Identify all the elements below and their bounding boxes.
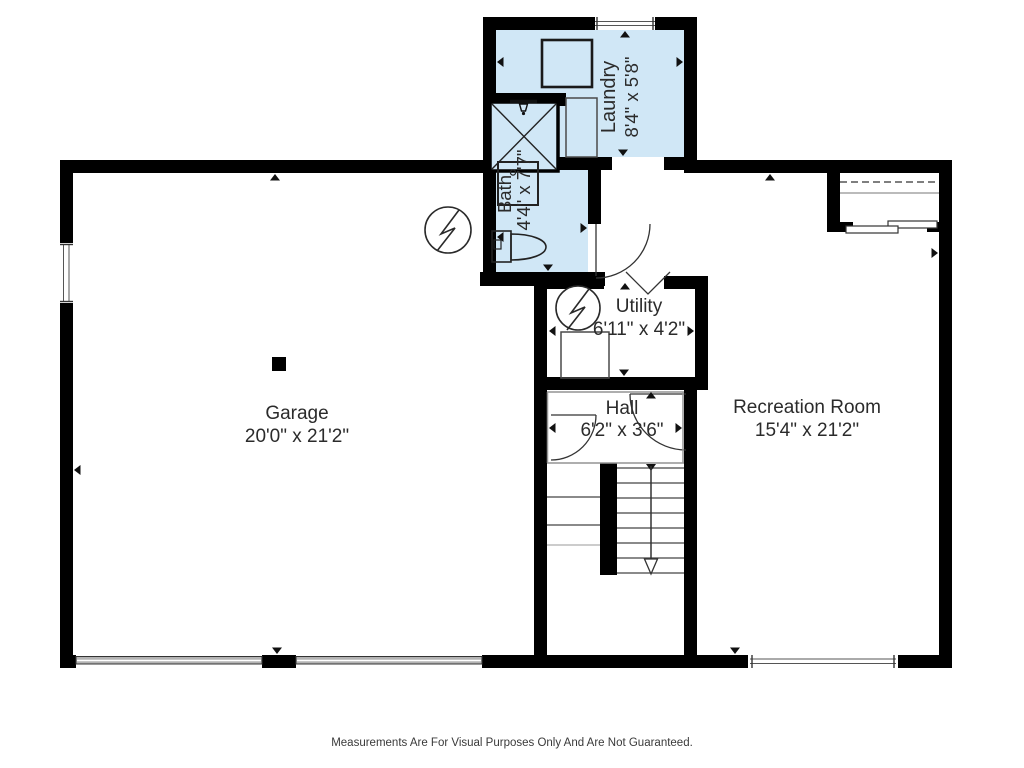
laundry-label: Laundry xyxy=(598,61,620,133)
bath-door xyxy=(596,224,650,278)
recreation-label: Recreation Room xyxy=(733,397,881,418)
circle-bolt-icon xyxy=(425,207,471,253)
bath-label: Bath xyxy=(494,175,515,213)
wall-bottom xyxy=(482,655,748,668)
windows xyxy=(60,17,898,668)
floor-plan-svg: Garage 20'0" x 21'2" Recreation Room 15'… xyxy=(0,0,1024,768)
wall-stair-divider xyxy=(600,463,617,575)
utility-dims: 6'11" x 4'2" xyxy=(593,319,685,340)
wall-closet-left xyxy=(827,173,840,232)
wall-utility-left xyxy=(534,276,547,390)
garage-dims: 20'0" x 21'2" xyxy=(245,426,349,447)
hall-label: Hall xyxy=(606,398,639,419)
wall-rec-top xyxy=(684,160,952,173)
hall-dims: 6'2" x 3'6" xyxy=(580,420,663,441)
wall-hall-left xyxy=(534,390,547,668)
wall-rec-right xyxy=(939,160,952,668)
wall-utility-bottom xyxy=(534,377,708,390)
wall-bottom xyxy=(60,655,76,668)
floor-plan: Garage 20'0" x 21'2" Recreation Room 15'… xyxy=(0,0,1024,768)
footer-disclaimer: Measurements Are For Visual Purposes Onl… xyxy=(331,737,693,749)
laundry-dims: 8'4" x 5'8" xyxy=(621,57,642,138)
garage-door-left xyxy=(76,655,262,668)
wall-bath-right xyxy=(588,168,601,224)
recreation-dims: 15'4" x 21'2" xyxy=(755,420,859,441)
wall-laundry-right xyxy=(684,17,697,173)
wall-garage-left xyxy=(60,160,73,668)
utility-door xyxy=(626,272,670,294)
garage-left-window xyxy=(60,243,73,303)
closet-sliding-door xyxy=(846,221,937,233)
garage-label: Garage xyxy=(265,403,328,424)
bath-dims: 4'4" x 7'7" xyxy=(513,150,534,231)
wall-garage-top xyxy=(60,160,496,173)
laundry-top-window xyxy=(595,17,655,30)
wall-bottom xyxy=(262,655,296,668)
wall-stairs-right xyxy=(684,390,697,668)
wall-utility-right xyxy=(695,276,708,390)
wall-laundry-top xyxy=(483,17,595,30)
rec-bottom-window xyxy=(748,655,898,668)
wall-laundry-bottom xyxy=(556,157,612,170)
closet-shelf xyxy=(840,182,939,193)
garage-door-right xyxy=(296,655,482,668)
garage-post xyxy=(272,357,286,371)
utility-label: Utility xyxy=(616,296,663,317)
